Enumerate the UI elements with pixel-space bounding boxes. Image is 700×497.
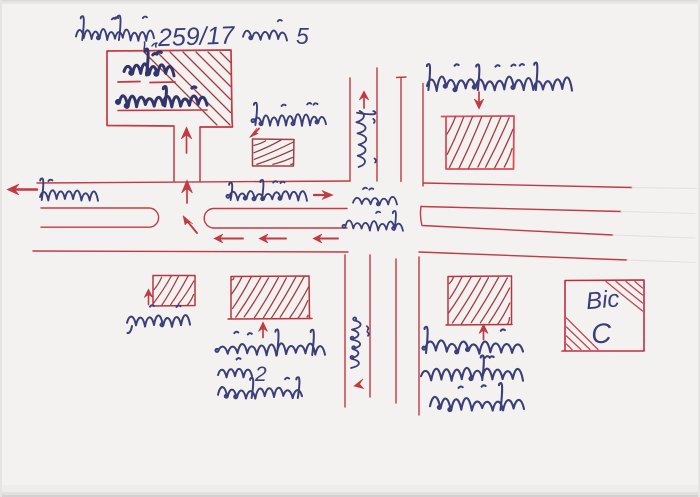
svg-text:5: 5	[296, 23, 309, 49]
svg-text:259/17: 259/17	[156, 21, 235, 52]
svg-text:Bic: Bic	[585, 285, 621, 315]
svg-text:2: 2	[254, 363, 267, 386]
svg-text:C: C	[590, 317, 613, 349]
